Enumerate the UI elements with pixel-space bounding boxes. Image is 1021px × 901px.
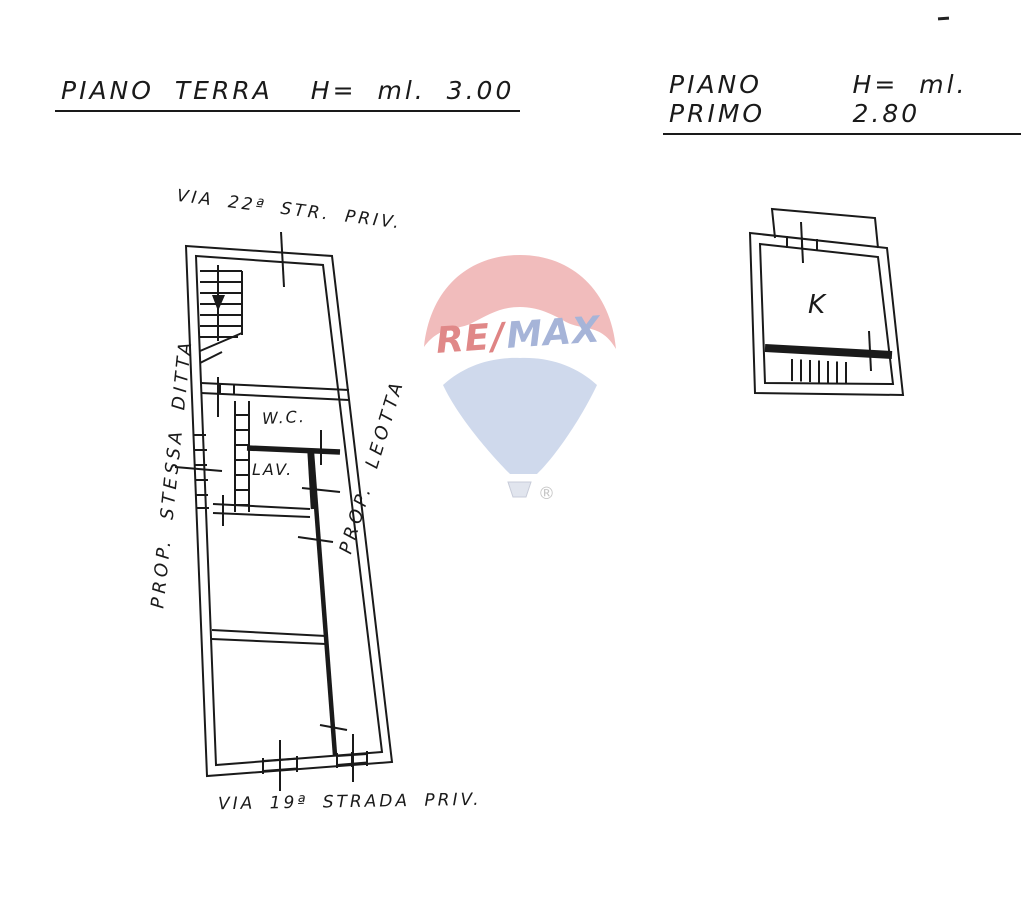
label-room-kitchen: K — [808, 290, 826, 320]
ground-floor-stairs — [200, 265, 242, 363]
title-spacer — [273, 76, 311, 105]
balloon-cone — [443, 358, 597, 474]
title-ground-floor-height: H= ml. 3.00 — [311, 76, 515, 105]
label-room-lav: LAV. — [252, 460, 293, 479]
tick-long-wall — [298, 537, 333, 542]
title-spacer — [837, 70, 853, 128]
first-floor-stairs — [792, 359, 846, 383]
remax-watermark: RE/MAX ® — [410, 245, 630, 505]
tick-lav — [302, 488, 340, 492]
partition-wall-lower — [212, 630, 326, 644]
label-street-bottom: VIA 19ª STRADA PRIV. — [218, 790, 482, 815]
label-room-wc: W.C. — [262, 407, 307, 428]
remax-re: RE — [435, 317, 492, 362]
window-tick-top — [801, 222, 803, 263]
partition-wall-upper — [201, 383, 349, 400]
title-first-floor: PIANO PRIMO H= ml. 2.80 — [663, 70, 1021, 135]
registered-mark: ® — [538, 484, 555, 504]
long-thick-wall — [312, 453, 335, 755]
title-ground-floor-label: PIANO TERRA — [61, 76, 273, 105]
tick-thick-wall — [869, 331, 871, 371]
inner-wall — [760, 244, 893, 384]
title-ground-floor: PIANO TERRA H= ml. 3.00 — [55, 76, 520, 112]
ground-floor-openings — [263, 751, 367, 774]
thick-wall — [765, 348, 892, 355]
scan-artifact-dash — [938, 17, 949, 21]
wc-thick-wall — [247, 448, 340, 452]
first-floor-walls — [750, 233, 903, 395]
partition-wall-mid — [213, 504, 310, 517]
balloon-basket — [508, 482, 531, 497]
outer-wall — [750, 233, 903, 395]
window-tick-top — [281, 232, 284, 287]
title-first-floor-height: H= ml. 2.80 — [853, 70, 1015, 128]
corridor-wall-hatched — [235, 401, 249, 512]
first-floor-plan — [735, 195, 920, 410]
remax-max: MAX — [505, 309, 603, 357]
title-first-floor-label: PIANO PRIMO — [669, 70, 837, 128]
ground-floor-partitions — [194, 383, 349, 755]
